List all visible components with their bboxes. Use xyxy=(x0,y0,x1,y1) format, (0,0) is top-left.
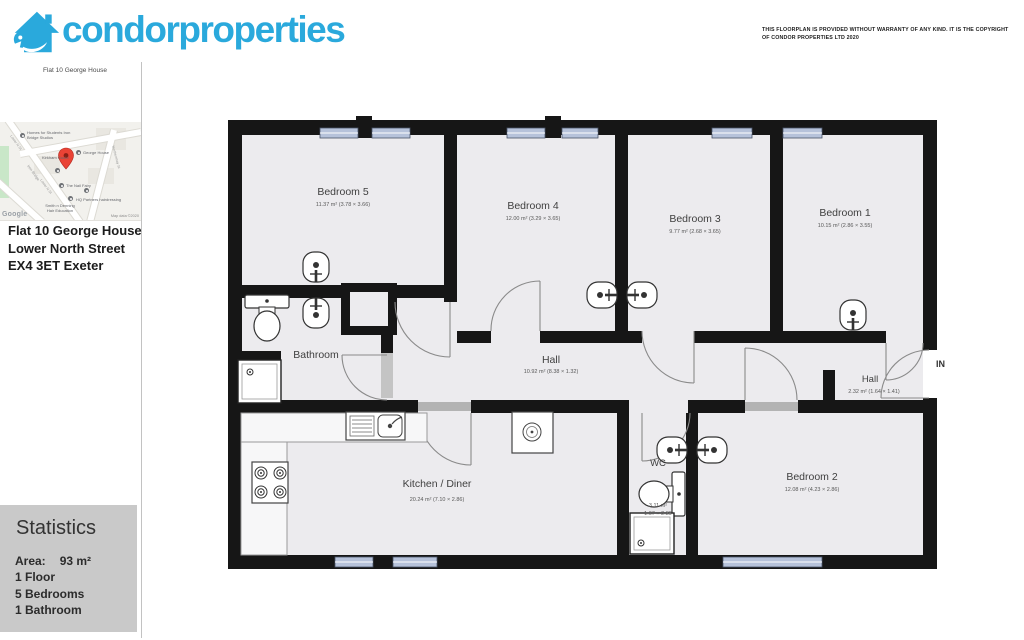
room-label-bedroom2: Bedroom 2 xyxy=(786,471,837,483)
entry-label: IN xyxy=(936,359,945,369)
floorplan-flyer: { "brand": { "name_part1": "condor", "na… xyxy=(0,0,1024,640)
room-label-bedroom4: Bedroom 4 xyxy=(507,200,558,212)
sink-icon xyxy=(303,252,329,282)
room-dims-bedroom4: 12.00 m² (3.29 × 3.65) xyxy=(506,216,561,222)
sink-icon xyxy=(840,300,866,330)
floorplan-drawing xyxy=(0,0,1024,640)
room-label-bedroom5: Bedroom 5 xyxy=(317,186,368,198)
room-label-hall2: Hall xyxy=(862,374,878,385)
room-label-bedroom1: Bedroom 1 xyxy=(819,207,870,219)
room-dims-kitchen: 20.24 m² (7.10 × 2.86) xyxy=(410,497,465,503)
room-dims-bedroom2: 12.08 m² (4.23 × 2.86) xyxy=(785,487,840,493)
room-dims-wc-2: 1.07 × 2.89 xyxy=(644,511,672,517)
kitchen-sink-icon xyxy=(346,412,405,440)
room-dims-bedroom3: 9.77 m² (2.68 × 3.65) xyxy=(669,229,721,235)
room-label-wc: WC xyxy=(650,458,666,469)
room-label-kitchen: Kitchen / Diner xyxy=(403,478,472,490)
room-dims-bedroom5: 11.37 m² (3.78 × 3.66) xyxy=(316,202,370,208)
room-dims-hall2: 2.32 m² (1.64 × 1.41) xyxy=(848,389,900,395)
washing-machine-icon xyxy=(512,412,553,453)
room-dims-bedroom1: 10.15 m² (2.86 × 3.55) xyxy=(818,223,873,229)
room-dims-hall: 10.92 m² (8.38 × 1.32) xyxy=(524,369,579,375)
sink-icon xyxy=(303,298,329,328)
room-label-hall: Hall xyxy=(542,354,560,366)
hob-icon xyxy=(252,462,288,503)
closet xyxy=(350,292,388,326)
room-label-bedroom3: Bedroom 3 xyxy=(669,213,720,225)
room-label-bathroom: Bathroom xyxy=(293,349,339,361)
room-dims-wc-1: 3.11 m² xyxy=(649,503,667,509)
sink-icon xyxy=(627,282,657,308)
sink-icon xyxy=(587,282,617,308)
sink-icon xyxy=(697,437,727,463)
